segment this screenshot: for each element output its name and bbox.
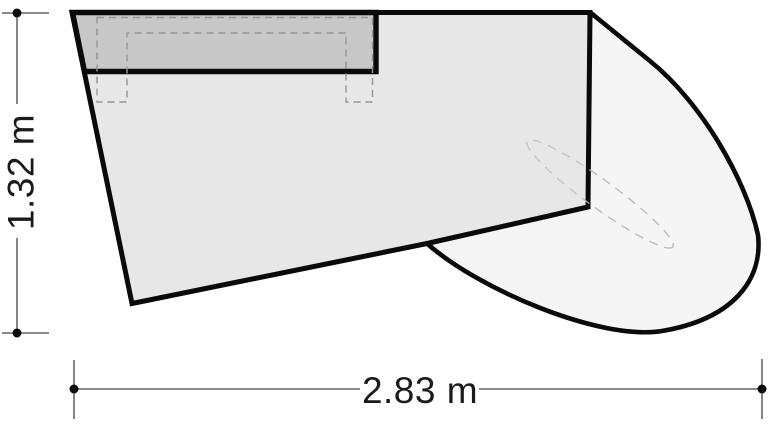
horizontal-dimension-endpoint-dot-left xyxy=(70,385,79,394)
top-panel-shape xyxy=(73,13,377,72)
vertical-dimension-endpoint-dot-top xyxy=(13,9,22,18)
width-dimension-label: 2.83 m xyxy=(362,370,478,411)
technical-drawing-canvas: 1.32 m 2.83 m xyxy=(0,0,768,432)
vertical-dimension-endpoint-dot-bottom xyxy=(13,329,22,338)
horizontal-dimension: 2.83 m xyxy=(70,359,767,419)
vertical-dimension: 1.32 m xyxy=(1,9,50,338)
horizontal-dimension-endpoint-dot-right xyxy=(758,385,767,394)
plan-drawing: 1.32 m 2.83 m xyxy=(0,0,768,432)
height-dimension-label: 1.32 m xyxy=(1,114,42,230)
